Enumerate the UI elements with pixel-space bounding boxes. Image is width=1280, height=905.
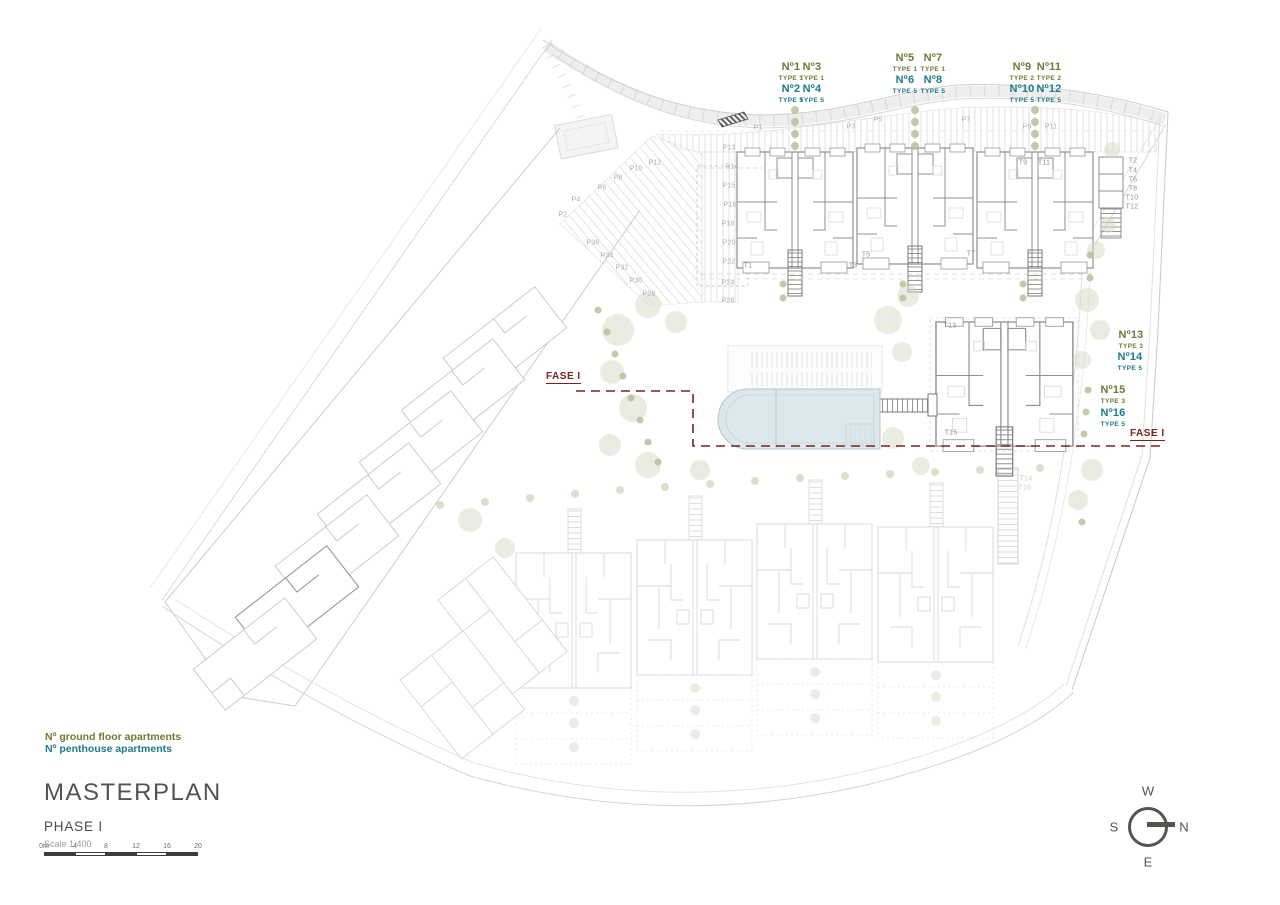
apartment-label-Nº11: Nº11TYPE 2 xyxy=(1037,61,1062,82)
compass-rose: W N S E xyxy=(1100,780,1196,876)
fase-label-right: FASE I xyxy=(1130,428,1165,441)
compass-needle-icon xyxy=(1147,822,1175,827)
parking-label-P28: P28 xyxy=(642,291,655,298)
phase-subtitle: PHASE I xyxy=(44,819,222,834)
scale-tick: 0m xyxy=(39,843,49,850)
parking-label-P22: P22 xyxy=(722,259,735,266)
compass-circle-icon xyxy=(1128,807,1168,847)
apartment-number: Nº16 xyxy=(1101,407,1126,419)
parking-label-P7: P7 xyxy=(962,117,971,124)
compass-east: E xyxy=(1144,855,1153,870)
legend-ground-floor: Nº ground floor apartments xyxy=(45,731,181,743)
parking-label-P11: P11 xyxy=(1045,124,1058,131)
stair-label-T1: T1 xyxy=(744,263,753,270)
stair-label-T3: T3 xyxy=(849,263,858,270)
scale-tick: 20 xyxy=(194,843,202,850)
scale-tick: 16 xyxy=(163,843,171,850)
apartment-number: Nº12 xyxy=(1037,83,1062,95)
apartment-type: TYPE 2 xyxy=(1037,75,1062,82)
apartment-number: Nº8 xyxy=(921,74,946,86)
apartment-number: Nº3 xyxy=(800,61,825,73)
apartment-label-Nº7: Nº7TYPE 1 xyxy=(921,52,946,73)
apartment-label-Nº3: Nº3TYPE 1 xyxy=(800,61,825,82)
plan-labels: P1P3P5P7P9P11P13R14P15P16P18P20P22P24P26… xyxy=(0,0,1280,905)
stair-label-T8: T8 xyxy=(1129,186,1138,193)
apartment-number: Nº11 xyxy=(1037,61,1062,73)
parking-label-P32: P32 xyxy=(615,265,628,272)
stair-label-T7: T7 xyxy=(967,251,976,258)
apartment-label-Nº10: Nº10TYPE 5 xyxy=(1010,83,1035,104)
apartment-type: TYPE 5 xyxy=(1010,97,1035,104)
apartment-number: Nº6 xyxy=(893,74,918,86)
parking-label-P30: P30 xyxy=(629,278,642,285)
apartment-label-Nº14: Nº14TYPE 5 xyxy=(1118,351,1143,372)
parking-label-P36: P36 xyxy=(586,240,599,247)
scale-tick: 12 xyxy=(132,843,140,850)
apartment-type: TYPE 5 xyxy=(1037,97,1062,104)
apartment-label-Nº6: Nº6TYPE 5 xyxy=(893,74,918,95)
stair-label-T6: T6 xyxy=(1129,177,1138,184)
stair-label-T12: T12 xyxy=(1126,204,1139,211)
parking-label-P10: P10 xyxy=(629,166,642,173)
apartment-label-Nº13: Nº13TYPE 3 xyxy=(1119,329,1144,350)
apartment-number: Nº7 xyxy=(921,52,946,64)
apartment-number: Nº13 xyxy=(1119,329,1144,341)
apartment-number: Nº14 xyxy=(1118,351,1143,363)
scale-segment xyxy=(167,852,198,856)
legend: Nº ground floor apartments Nº penthouse … xyxy=(45,731,181,755)
parking-label-P15: P15 xyxy=(722,183,735,190)
parking-label-P26: P26 xyxy=(721,298,734,305)
scale-bar: 0m 4 8 12 16 20 xyxy=(44,843,204,859)
apartment-number: Nº9 xyxy=(1010,61,1035,73)
apartment-number: Nº4 xyxy=(800,83,825,95)
stair-label-T9: T9 xyxy=(1019,160,1028,167)
parking-label-P5: P5 xyxy=(874,117,883,124)
apartment-type: TYPE 1 xyxy=(921,66,946,73)
apartment-type: TYPE 3 xyxy=(1101,398,1126,405)
compass-north: N xyxy=(1179,820,1188,835)
parking-label-R14: R14 xyxy=(725,164,738,171)
apartment-label-Nº8: Nº8TYPE 5 xyxy=(921,74,946,95)
stair-label-T13: T13 xyxy=(944,323,957,330)
compass-west: W xyxy=(1142,784,1154,799)
apartment-type: TYPE 5 xyxy=(921,88,946,95)
parking-label-P9: P9 xyxy=(1023,124,1032,131)
parking-label-P18: P18 xyxy=(721,221,734,228)
apartment-type: TYPE 5 xyxy=(1101,421,1126,428)
apartment-label-Nº9: Nº9TYPE 2 xyxy=(1010,61,1035,82)
apartment-number: Nº15 xyxy=(1101,384,1126,396)
parking-label-P1: P1 xyxy=(754,125,763,132)
apartment-type: TYPE 5 xyxy=(1118,365,1143,372)
parking-label-P2: P2 xyxy=(559,212,568,219)
apartment-type: TYPE 1 xyxy=(893,66,918,73)
scale-segment xyxy=(75,852,106,856)
apartment-type: TYPE 5 xyxy=(800,97,825,104)
parking-label-P24: P24 xyxy=(721,280,734,287)
stair-label-T4: T4 xyxy=(1129,168,1138,175)
stair-label-T10: T10 xyxy=(1126,195,1139,202)
parking-label-P3: P3 xyxy=(847,124,856,131)
scale-tick: 4 xyxy=(73,843,77,850)
stair-label-T11: T11 xyxy=(1038,160,1050,167)
fase-label-left: FASE I xyxy=(546,371,581,384)
scale-segment xyxy=(44,852,75,856)
apartment-type: TYPE 5 xyxy=(893,88,918,95)
stair-label-T2: T2 xyxy=(1129,158,1138,165)
page-title: MASTERPLAN xyxy=(44,779,222,807)
parking-label-P8: P8 xyxy=(614,175,623,182)
apartment-label-Nº4: Nº4TYPE 5 xyxy=(800,83,825,104)
apartment-label-Nº16: Nº16TYPE 5 xyxy=(1101,407,1126,428)
stair-label-T5: T5 xyxy=(862,252,871,259)
apartment-label-Nº12: Nº12TYPE 5 xyxy=(1037,83,1062,104)
stair-label-T14: T14 xyxy=(1020,476,1033,483)
apartment-number: Nº5 xyxy=(893,52,918,64)
apartment-number: Nº10 xyxy=(1010,83,1035,95)
scale-tick: 8 xyxy=(104,843,108,850)
scale-segment xyxy=(136,852,167,856)
apartment-type: TYPE 2 xyxy=(1010,75,1035,82)
compass-south: S xyxy=(1110,820,1119,835)
masterplan-page: P1P3P5P7P9P11P13R14P15P16P18P20P22P24P26… xyxy=(0,0,1280,905)
parking-label-P34: P34 xyxy=(600,253,613,260)
apartment-type: TYPE 1 xyxy=(800,75,825,82)
apartment-label-Nº5: Nº5TYPE 1 xyxy=(893,52,918,73)
parking-label-P12: P12 xyxy=(648,160,661,167)
stair-label-T16: T16 xyxy=(1019,485,1032,492)
apartment-type: TYPE 3 xyxy=(1119,343,1144,350)
apartment-label-Nº15: Nº15TYPE 3 xyxy=(1101,384,1126,405)
parking-label-P6: P6 xyxy=(598,185,607,192)
scale-segment xyxy=(106,852,137,856)
stair-label-T15: T15 xyxy=(945,430,958,437)
title-block: MASTERPLAN PHASE I Scale 1:400 xyxy=(44,779,222,849)
parking-label-P16: P16 xyxy=(723,202,736,209)
parking-label-P4: P4 xyxy=(572,197,581,204)
legend-penthouse: Nº penthouse apartments xyxy=(45,743,181,755)
parking-label-P20: P20 xyxy=(722,240,735,247)
parking-label-P13: P13 xyxy=(722,145,735,152)
